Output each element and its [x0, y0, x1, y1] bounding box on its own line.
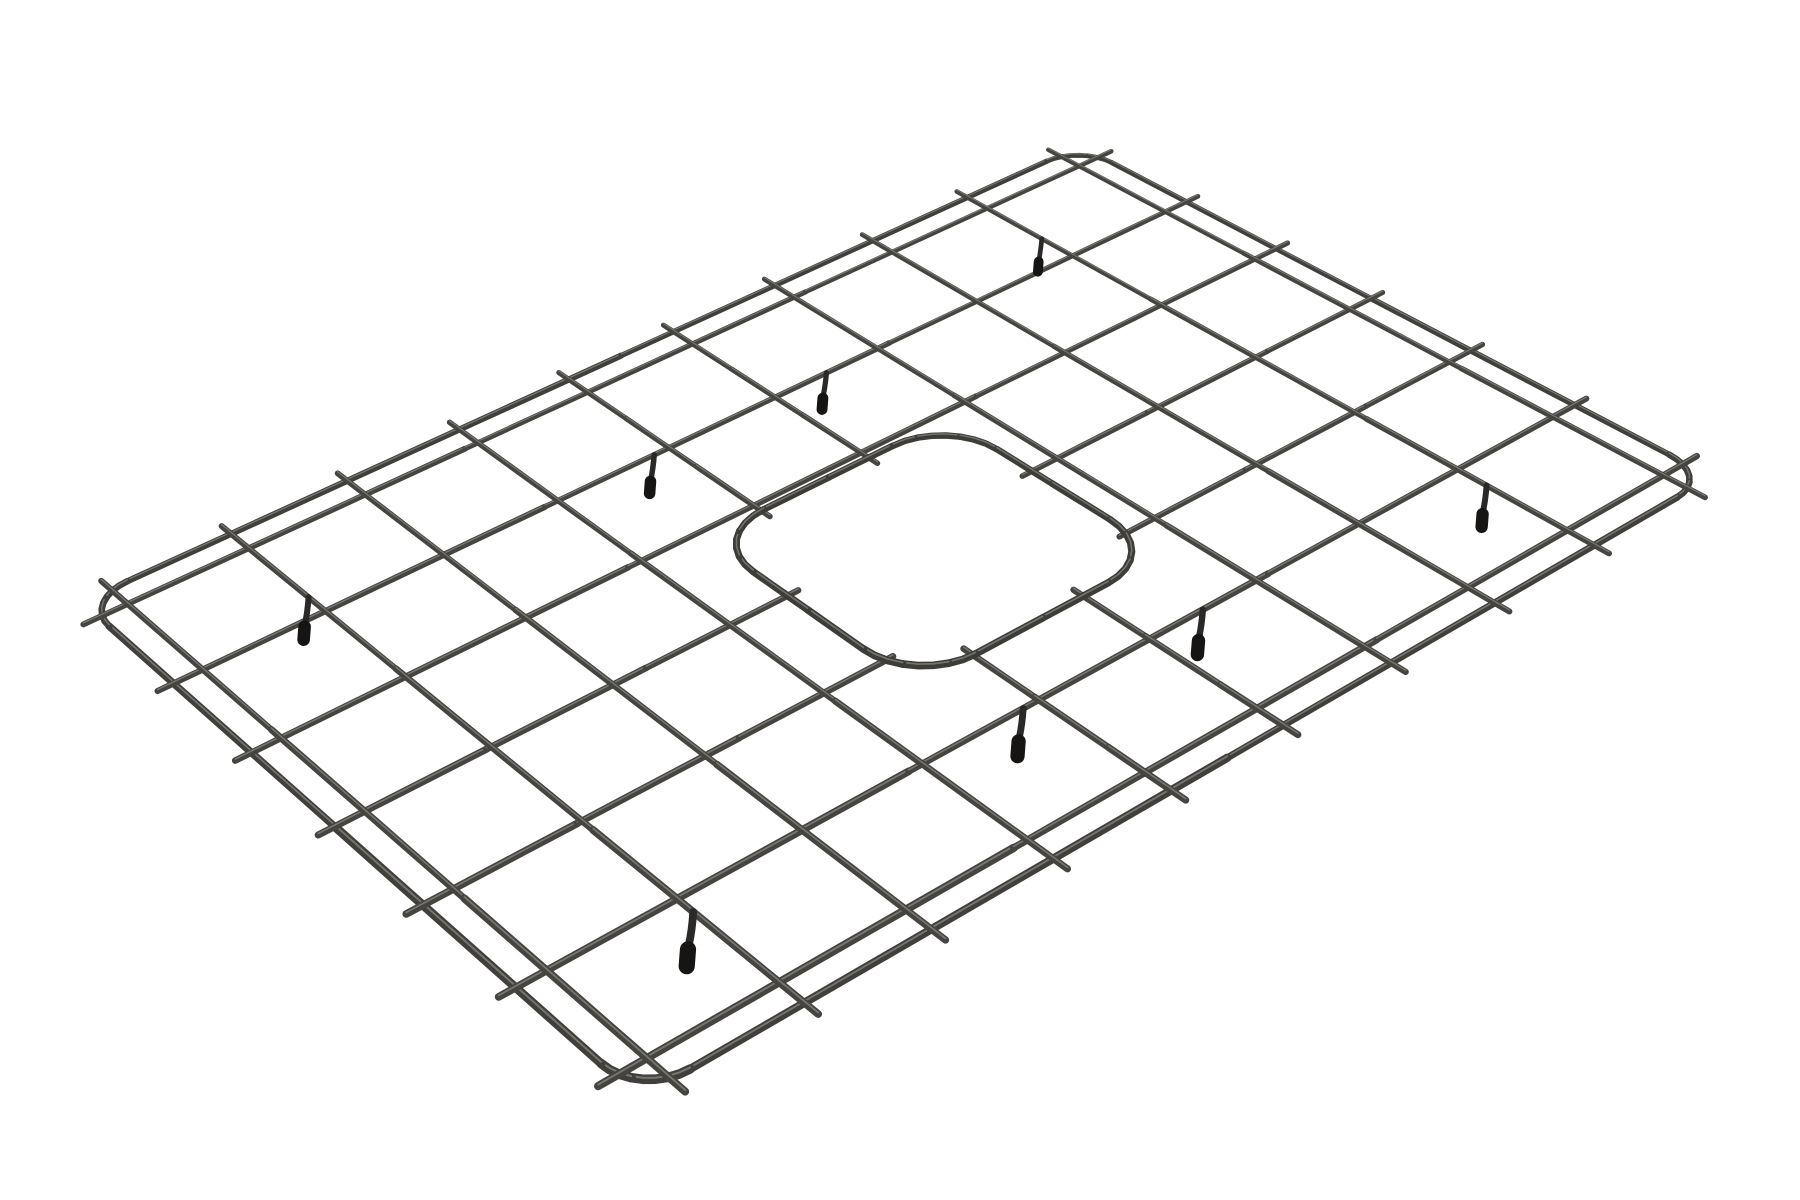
- longitudinal-wire-highlight: [628, 394, 976, 565]
- transverse-wire: [450, 422, 631, 553]
- transverse-wire-highlight: [764, 278, 954, 394]
- longitudinal-wire: [158, 507, 545, 691]
- longitudinal-wire: [628, 396, 976, 567]
- longitudinal-wire: [1246, 406, 1367, 470]
- transverse-wire-highlight: [862, 233, 1054, 345]
- transverse-wire-highlight: [338, 472, 516, 609]
- foot-leg: [1039, 239, 1042, 259]
- longitudinal-wire: [83, 449, 465, 625]
- foot-rubber-tip: [822, 398, 823, 409]
- longitudinal-wire-highlight: [1377, 455, 1697, 639]
- foot-leg: [651, 455, 654, 479]
- frame-rod: [1112, 163, 1371, 299]
- longitudinal-wire-highlight: [158, 505, 545, 689]
- longitudinal-wire: [1119, 470, 1245, 537]
- longitudinal-wire: [1377, 456, 1697, 640]
- longitudinal-wire-highlight: [577, 736, 739, 822]
- cutout-rod-highlight: [976, 616, 1043, 652]
- cutout-rod: [960, 437, 997, 450]
- transverse-wire: [764, 279, 954, 395]
- transverse-wire-highlight: [835, 700, 1067, 868]
- transverse-wire-highlight: [697, 465, 770, 515]
- foot-leg: [1019, 708, 1023, 738]
- longitudinal-wire: [977, 243, 1288, 396]
- foot-rubber-tip: [1482, 514, 1483, 527]
- transverse-wire: [957, 192, 1151, 300]
- transverse-wire: [1035, 697, 1109, 747]
- frame-rod-highlight: [1371, 297, 1669, 453]
- frame-rod-highlight: [1112, 161, 1371, 297]
- cutout-rod-highlight: [764, 476, 830, 508]
- longitudinal-wire-highlight: [83, 447, 465, 623]
- foot-leg: [823, 373, 826, 396]
- cutout-rod-highlight: [808, 608, 864, 647]
- transverse-wire: [1244, 253, 1462, 368]
- longitudinal-wire-highlight: [889, 195, 1197, 342]
- cutout-rod: [976, 618, 1043, 654]
- longitudinal-wire-highlight: [487, 666, 647, 747]
- cutout-rod-highlight: [829, 444, 893, 476]
- longitudinal-wire: [487, 668, 647, 749]
- foot-rubber-tip: [304, 627, 305, 640]
- transverse-wire: [1145, 636, 1220, 684]
- longitudinal-wire: [235, 567, 628, 760]
- transverse-wire-highlight: [516, 608, 717, 762]
- product-image-canvas: [0, 0, 1800, 1200]
- longitudinal-wire-highlight: [1119, 468, 1245, 535]
- longitudinal-wire-highlight: [1148, 350, 1268, 411]
- frame-rod: [1371, 298, 1669, 454]
- frame-rod: [621, 161, 1047, 355]
- transverse-wire: [101, 581, 271, 730]
- longitudinal-wire-highlight: [977, 241, 1288, 394]
- transverse-wire-highlight: [271, 728, 464, 897]
- transverse-wire: [516, 610, 717, 764]
- longitudinal-wire-highlight: [1246, 404, 1367, 468]
- longitudinal-wire: [806, 151, 1112, 292]
- foot-leg: [1483, 485, 1487, 511]
- foot-leg: [1199, 610, 1203, 638]
- transverse-wire: [835, 701, 1067, 869]
- frame-rod: [335, 827, 601, 1064]
- transverse-wire: [396, 669, 593, 830]
- longitudinal-wire-highlight: [806, 150, 1112, 291]
- frame-rod: [1227, 497, 1677, 758]
- transverse-wire-highlight: [1268, 470, 1509, 610]
- cutout-rod: [1053, 484, 1111, 520]
- rubber-feet: [304, 239, 1487, 967]
- transverse-wire-highlight: [593, 828, 818, 1012]
- transverse-wire-highlight: [450, 421, 631, 552]
- frame-rod-highlight: [1227, 496, 1677, 757]
- transverse-wire-highlight: [1048, 148, 1244, 252]
- cutout-rod-highlight: [1043, 581, 1109, 616]
- longitudinal-wire: [889, 196, 1197, 343]
- foot-rubber-tip: [1197, 641, 1198, 655]
- cutout-rod: [808, 610, 864, 649]
- longitudinal-wire: [1268, 293, 1383, 352]
- transverse-wire-highlight: [631, 552, 835, 700]
- transverse-wire-highlight: [101, 579, 271, 728]
- transverse-wire: [1048, 150, 1244, 254]
- transverse-wire-highlight: [1054, 345, 1268, 470]
- longitudinal-wire: [577, 738, 739, 824]
- transverse-wire-highlight: [954, 394, 1166, 524]
- transverse-wire-highlight: [803, 414, 878, 462]
- foot-leg: [305, 597, 309, 623]
- transverse-wire: [862, 235, 1054, 347]
- longitudinal-wire: [909, 574, 1269, 772]
- transverse-wire-highlight: [1145, 635, 1220, 683]
- transverse-wire: [271, 730, 464, 899]
- longitudinal-wire: [1022, 412, 1147, 476]
- transverse-wire: [1268, 471, 1509, 611]
- frame-rod: [127, 356, 621, 582]
- transverse-wire-highlight: [717, 763, 946, 939]
- transverse-wire-highlight: [957, 190, 1151, 298]
- transverse-wire-highlight: [1035, 696, 1109, 746]
- foot-rubber-tip: [1018, 741, 1019, 756]
- transverse-wire: [631, 554, 835, 702]
- transverse-wire-highlight: [1461, 367, 1705, 496]
- transverse-wire: [732, 369, 803, 415]
- sink-grid-illustration: [0, 0, 1800, 1200]
- transverse-wire: [954, 395, 1166, 525]
- outer-frame: [102, 154, 1690, 1080]
- frame-rod-highlight: [621, 160, 1047, 354]
- longitudinal-wire: [1367, 345, 1483, 406]
- frame-rod-highlight: [335, 825, 601, 1062]
- frame-rod: [1062, 155, 1089, 156]
- frame-rod-highlight: [127, 354, 621, 580]
- transverse-wire-highlight: [396, 667, 593, 828]
- longitudinal-wire: [1148, 351, 1268, 412]
- longitudinal-wire-highlight: [235, 566, 628, 759]
- foot-rubber-tip: [687, 949, 688, 966]
- foot-rubber-tip: [650, 481, 651, 493]
- longitudinal-wire-highlight: [1022, 411, 1147, 475]
- foot-rubber-tip: [1038, 262, 1039, 272]
- transverse-wire: [1461, 369, 1705, 498]
- transverse-wire-highlight: [1244, 252, 1462, 367]
- foot-leg: [689, 912, 694, 946]
- transverse-wire: [717, 764, 946, 940]
